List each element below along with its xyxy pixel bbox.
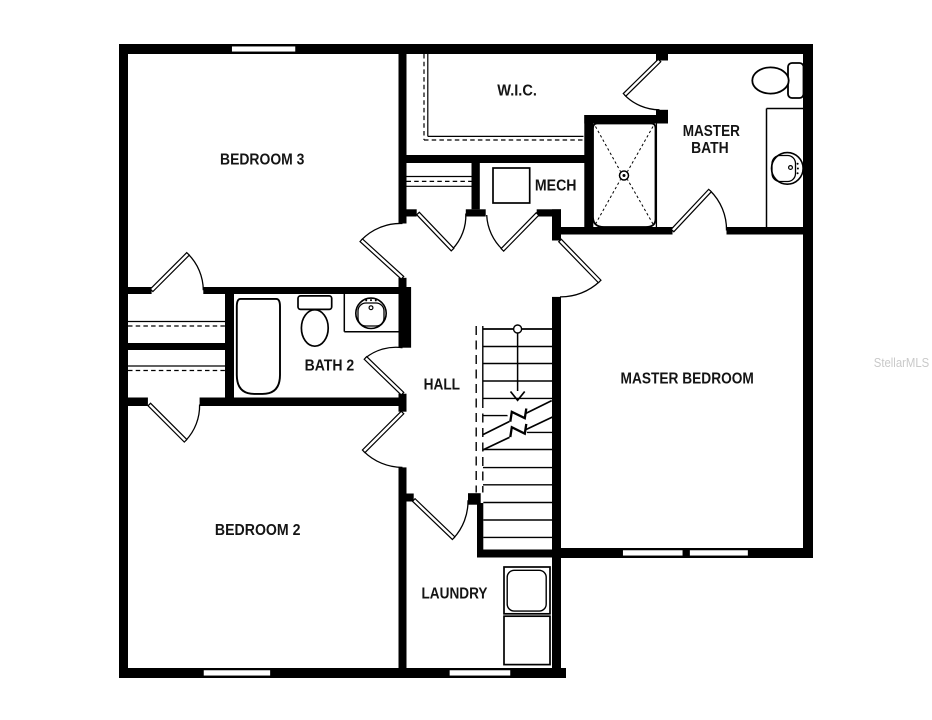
svg-text:HALL: HALL: [424, 376, 461, 393]
svg-text:LAUNDRY: LAUNDRY: [422, 586, 488, 603]
svg-text:MASTER: MASTER: [683, 123, 741, 140]
svg-text:BATH: BATH: [691, 140, 729, 157]
svg-text:BATH 2: BATH 2: [305, 357, 355, 374]
svg-text:BEDROOM 3: BEDROOM 3: [220, 151, 304, 168]
svg-text:BEDROOM 2: BEDROOM 2: [215, 522, 301, 539]
svg-text:MASTER BEDROOM: MASTER BEDROOM: [621, 370, 754, 387]
svg-text:StellarMLS: StellarMLS: [874, 356, 930, 370]
svg-text:MECH: MECH: [535, 177, 577, 194]
svg-text:W.I.C.: W.I.C.: [497, 82, 537, 99]
